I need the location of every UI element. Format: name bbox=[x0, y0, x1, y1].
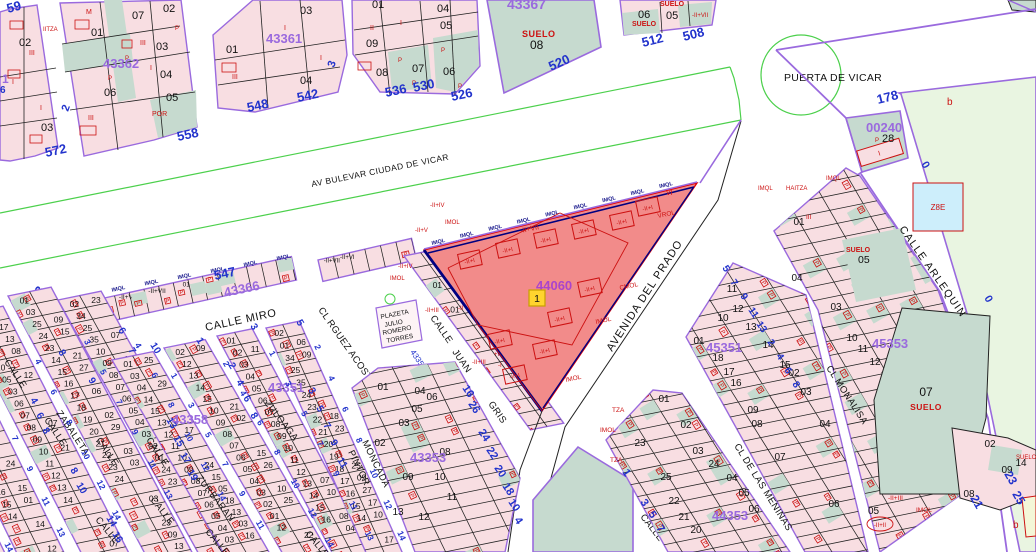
svg-text:03: 03 bbox=[239, 360, 249, 370]
svg-text:13: 13 bbox=[57, 483, 67, 493]
svg-text:14: 14 bbox=[196, 382, 206, 392]
svg-text:10: 10 bbox=[434, 472, 446, 483]
svg-text:05: 05 bbox=[252, 383, 262, 393]
svg-text:01: 01 bbox=[123, 359, 133, 369]
svg-text:SUELO: SUELO bbox=[632, 21, 657, 28]
svg-text:03: 03 bbox=[225, 535, 235, 545]
svg-text:13: 13 bbox=[174, 541, 184, 551]
svg-text:07: 07 bbox=[116, 382, 126, 392]
svg-text:04: 04 bbox=[791, 273, 803, 284]
svg-text:06: 06 bbox=[92, 386, 102, 396]
svg-text:15: 15 bbox=[211, 472, 221, 482]
svg-text:10: 10 bbox=[277, 483, 287, 493]
svg-text:34: 34 bbox=[285, 353, 295, 363]
svg-text:29: 29 bbox=[157, 378, 167, 388]
svg-text:02: 02 bbox=[70, 299, 80, 309]
svg-text:-II+IV: -II+IV bbox=[398, 264, 413, 270]
svg-text:-II: -II bbox=[458, 306, 464, 312]
svg-text:1: 1 bbox=[2, 72, 9, 86]
svg-text:09: 09 bbox=[168, 529, 178, 539]
svg-text:03: 03 bbox=[156, 41, 168, 53]
svg-text:23: 23 bbox=[168, 476, 178, 486]
svg-text:25: 25 bbox=[284, 495, 294, 505]
svg-text:03: 03 bbox=[123, 446, 133, 456]
svg-text:15: 15 bbox=[150, 406, 160, 416]
svg-text:10: 10 bbox=[96, 346, 106, 356]
svg-text:POR: POR bbox=[152, 111, 167, 118]
svg-text:13: 13 bbox=[189, 371, 199, 381]
svg-text:I: I bbox=[40, 105, 42, 112]
svg-text:05: 05 bbox=[243, 464, 253, 474]
svg-text:17: 17 bbox=[384, 534, 394, 544]
svg-text:IMQL: IMQL bbox=[826, 176, 841, 182]
svg-text:08: 08 bbox=[530, 38, 544, 52]
svg-text:26: 26 bbox=[263, 460, 273, 470]
svg-text:b: b bbox=[1013, 520, 1019, 531]
svg-text:10: 10 bbox=[284, 443, 294, 453]
svg-text:16: 16 bbox=[730, 378, 742, 389]
svg-text:13: 13 bbox=[5, 334, 15, 344]
svg-text:05: 05 bbox=[129, 405, 139, 415]
svg-text:09: 09 bbox=[402, 472, 414, 483]
svg-text:09: 09 bbox=[747, 405, 759, 416]
svg-text:09: 09 bbox=[302, 349, 312, 359]
svg-text:04: 04 bbox=[218, 523, 228, 533]
svg-text:04: 04 bbox=[250, 476, 260, 486]
svg-text:43367: 43367 bbox=[507, 0, 546, 12]
svg-text:22: 22 bbox=[313, 414, 323, 424]
svg-text:04: 04 bbox=[300, 75, 312, 87]
svg-text:04: 04 bbox=[246, 371, 256, 381]
svg-text:12: 12 bbox=[277, 523, 287, 533]
svg-text:Z8E: Z8E bbox=[931, 203, 946, 212]
svg-text:03: 03 bbox=[800, 387, 812, 398]
svg-text:43353: 43353 bbox=[410, 450, 446, 465]
svg-text:11: 11 bbox=[45, 459, 54, 469]
svg-text:IMOL: IMOL bbox=[916, 507, 932, 514]
svg-text:12: 12 bbox=[418, 512, 430, 523]
svg-text:02: 02 bbox=[263, 499, 273, 509]
svg-text:16: 16 bbox=[245, 530, 255, 540]
svg-text:M: M bbox=[86, 9, 92, 16]
svg-text:15: 15 bbox=[60, 327, 70, 337]
svg-text:10: 10 bbox=[846, 333, 858, 344]
svg-text:25: 25 bbox=[144, 355, 154, 365]
svg-text:6: 6 bbox=[0, 85, 6, 96]
svg-text:-II+VI: -II+VI bbox=[340, 255, 355, 261]
svg-text:15: 15 bbox=[257, 448, 267, 458]
svg-text:II: II bbox=[370, 25, 374, 32]
svg-text:43361: 43361 bbox=[266, 31, 302, 46]
svg-text:06: 06 bbox=[748, 504, 760, 515]
svg-text:P: P bbox=[175, 26, 179, 32]
svg-text:45353: 45353 bbox=[872, 336, 908, 351]
svg-text:27: 27 bbox=[79, 362, 89, 372]
svg-text:03: 03 bbox=[130, 371, 140, 381]
svg-text:IMOL: IMOL bbox=[390, 276, 405, 282]
svg-text:08: 08 bbox=[223, 429, 233, 439]
svg-text:01: 01 bbox=[693, 336, 705, 347]
svg-text:25: 25 bbox=[32, 319, 42, 329]
svg-text:15: 15 bbox=[18, 483, 28, 493]
svg-text:10: 10 bbox=[327, 487, 337, 497]
svg-text:25: 25 bbox=[291, 365, 301, 375]
svg-text:IMOL: IMOL bbox=[445, 220, 460, 226]
svg-text:SUELO: SUELO bbox=[910, 402, 942, 412]
svg-text:28: 28 bbox=[882, 133, 894, 145]
svg-text:III: III bbox=[88, 115, 94, 122]
svg-text:15: 15 bbox=[58, 367, 68, 377]
svg-text:1: 1 bbox=[534, 293, 540, 305]
svg-text:03: 03 bbox=[238, 519, 248, 529]
svg-text:06: 06 bbox=[443, 66, 455, 78]
svg-text:04: 04 bbox=[135, 417, 145, 427]
svg-text:07: 07 bbox=[320, 475, 330, 485]
svg-text:09: 09 bbox=[54, 315, 64, 325]
svg-text:01: 01 bbox=[658, 394, 670, 405]
svg-text:12: 12 bbox=[869, 357, 881, 368]
svg-text:-II+V: -II+V bbox=[415, 228, 428, 234]
svg-text:04: 04 bbox=[414, 386, 426, 397]
svg-text:29: 29 bbox=[111, 422, 121, 432]
svg-text:23: 23 bbox=[634, 438, 646, 449]
svg-text:10: 10 bbox=[373, 510, 383, 520]
svg-text:SUELO: SUELO bbox=[1016, 455, 1036, 461]
svg-text:01: 01 bbox=[20, 295, 30, 305]
svg-text:SUELO: SUELO bbox=[846, 247, 871, 254]
svg-text:02: 02 bbox=[274, 328, 284, 338]
svg-text:III: III bbox=[140, 40, 146, 47]
svg-text:-II+III: -II+III bbox=[888, 495, 903, 502]
svg-text:12: 12 bbox=[732, 304, 744, 315]
svg-text:-II+III: -II+III bbox=[472, 360, 486, 366]
svg-text:10: 10 bbox=[39, 447, 49, 457]
svg-text:17: 17 bbox=[340, 476, 350, 486]
svg-text:24: 24 bbox=[115, 474, 125, 484]
svg-text:18: 18 bbox=[329, 411, 339, 421]
svg-text:18: 18 bbox=[77, 403, 87, 413]
svg-text:05: 05 bbox=[868, 506, 880, 517]
svg-text:01: 01 bbox=[226, 44, 238, 56]
svg-text:02: 02 bbox=[19, 37, 31, 49]
svg-text:11: 11 bbox=[290, 455, 299, 465]
svg-text:07: 07 bbox=[229, 441, 239, 451]
svg-text:III: III bbox=[806, 214, 812, 221]
svg-text:IITZA: IITZA bbox=[43, 27, 58, 33]
svg-text:03: 03 bbox=[130, 458, 140, 468]
svg-text:04: 04 bbox=[819, 419, 831, 430]
svg-text:06: 06 bbox=[104, 87, 116, 99]
svg-text:05: 05 bbox=[440, 20, 452, 32]
svg-text:21: 21 bbox=[230, 401, 240, 411]
svg-text:P: P bbox=[125, 56, 129, 62]
svg-text:03: 03 bbox=[8, 387, 18, 397]
svg-text:01: 01 bbox=[91, 27, 103, 39]
svg-text:I: I bbox=[320, 55, 322, 62]
svg-text:P: P bbox=[875, 138, 879, 144]
svg-text:08: 08 bbox=[376, 67, 388, 79]
svg-text:16: 16 bbox=[0, 487, 6, 497]
svg-text:20: 20 bbox=[690, 525, 702, 536]
svg-text:14: 14 bbox=[63, 495, 73, 505]
svg-text:03: 03 bbox=[26, 307, 36, 317]
svg-text:03: 03 bbox=[830, 302, 842, 313]
svg-text:11: 11 bbox=[858, 344, 869, 355]
svg-text:03: 03 bbox=[41, 122, 53, 134]
svg-text:21: 21 bbox=[678, 512, 690, 523]
svg-text:TZA: TZA bbox=[612, 407, 625, 414]
svg-text:14: 14 bbox=[8, 511, 18, 521]
svg-text:15: 15 bbox=[202, 394, 212, 404]
svg-text:16: 16 bbox=[322, 515, 332, 525]
svg-text:09: 09 bbox=[216, 417, 226, 427]
svg-text:TZA: TZA bbox=[610, 457, 623, 464]
svg-text:10: 10 bbox=[717, 313, 729, 324]
svg-text:43362: 43362 bbox=[103, 56, 139, 71]
svg-text:10: 10 bbox=[209, 406, 219, 416]
svg-text:09: 09 bbox=[366, 38, 378, 50]
svg-text:05: 05 bbox=[666, 10, 678, 22]
svg-text:-II+II: -II+II bbox=[874, 523, 887, 529]
svg-text:05: 05 bbox=[166, 92, 178, 104]
svg-text:VI: VI bbox=[666, 190, 673, 197]
svg-text:24: 24 bbox=[708, 459, 720, 470]
svg-text:01: 01 bbox=[372, 0, 384, 11]
svg-text:P: P bbox=[441, 48, 445, 54]
svg-text:02: 02 bbox=[374, 438, 386, 449]
svg-text:07: 07 bbox=[20, 411, 30, 421]
svg-text:III: III bbox=[29, 50, 35, 57]
svg-text:09: 09 bbox=[33, 435, 43, 445]
svg-text:SUELO: SUELO bbox=[660, 1, 685, 8]
svg-text:P: P bbox=[108, 76, 112, 82]
svg-text:I: I bbox=[400, 20, 402, 27]
svg-text:14: 14 bbox=[144, 394, 154, 404]
svg-text:07: 07 bbox=[412, 63, 424, 75]
svg-text:11: 11 bbox=[447, 492, 458, 503]
svg-text:03: 03 bbox=[256, 488, 266, 498]
svg-text:22: 22 bbox=[668, 496, 680, 507]
svg-text:PUERTA DE VICAR: PUERTA DE VICAR bbox=[784, 72, 882, 84]
svg-text:06: 06 bbox=[14, 399, 24, 409]
svg-text:14: 14 bbox=[35, 519, 45, 529]
svg-text:05: 05 bbox=[738, 488, 750, 499]
svg-text:43358: 43358 bbox=[172, 412, 208, 427]
svg-text:07: 07 bbox=[774, 452, 786, 463]
svg-text:16: 16 bbox=[346, 488, 356, 498]
svg-text:45351: 45351 bbox=[706, 340, 742, 355]
svg-text:-II+III: -II+III bbox=[425, 308, 439, 314]
svg-text:I: I bbox=[284, 25, 286, 32]
svg-text:01: 01 bbox=[433, 280, 443, 290]
svg-text:01: 01 bbox=[270, 511, 280, 521]
svg-text:P: P bbox=[398, 58, 402, 64]
svg-text:13: 13 bbox=[303, 479, 313, 489]
svg-text:25: 25 bbox=[83, 323, 93, 333]
svg-text:19: 19 bbox=[83, 415, 93, 425]
svg-text:IMQL: IMQL bbox=[758, 186, 773, 192]
svg-text:I: I bbox=[150, 65, 152, 72]
svg-text:06: 06 bbox=[236, 452, 246, 462]
svg-text:-II+VII: -II+VII bbox=[148, 288, 166, 295]
svg-text:04: 04 bbox=[437, 3, 449, 15]
svg-text:02: 02 bbox=[175, 347, 185, 357]
svg-text:-II+VII: -II+VII bbox=[324, 259, 341, 265]
svg-text:13: 13 bbox=[392, 507, 404, 518]
svg-text:HAITZA: HAITZA bbox=[786, 186, 807, 192]
svg-text:01: 01 bbox=[24, 495, 34, 505]
svg-text:08: 08 bbox=[109, 370, 119, 380]
svg-text:23: 23 bbox=[45, 343, 55, 353]
svg-text:17: 17 bbox=[70, 391, 80, 401]
svg-text:12: 12 bbox=[296, 467, 306, 477]
svg-text:15: 15 bbox=[2, 499, 12, 509]
svg-text:08: 08 bbox=[11, 346, 21, 356]
svg-text:16: 16 bbox=[64, 379, 74, 389]
svg-text:-II+IV: -II+IV bbox=[430, 203, 445, 209]
svg-text:24: 24 bbox=[39, 331, 49, 341]
svg-text:02: 02 bbox=[233, 348, 243, 358]
svg-text:12: 12 bbox=[47, 543, 57, 552]
svg-text:02: 02 bbox=[680, 420, 692, 431]
svg-text:05: 05 bbox=[858, 254, 870, 266]
svg-text:14: 14 bbox=[357, 513, 367, 523]
svg-text:12: 12 bbox=[51, 471, 61, 481]
svg-text:08: 08 bbox=[751, 419, 763, 430]
svg-text:06: 06 bbox=[426, 392, 438, 403]
svg-text:01: 01 bbox=[793, 217, 805, 228]
svg-text:02: 02 bbox=[104, 410, 114, 420]
svg-text:05: 05 bbox=[411, 404, 423, 415]
svg-text:02: 02 bbox=[163, 3, 175, 15]
svg-text:03: 03 bbox=[692, 446, 704, 457]
svg-text:04: 04 bbox=[160, 69, 172, 81]
svg-text:06: 06 bbox=[638, 9, 650, 21]
svg-text:-II+VII: -II+VII bbox=[692, 13, 709, 19]
svg-text:III: III bbox=[232, 74, 238, 81]
svg-text:17: 17 bbox=[368, 497, 378, 507]
svg-text:03: 03 bbox=[300, 5, 312, 17]
svg-text:23: 23 bbox=[335, 423, 345, 433]
svg-text:17: 17 bbox=[723, 367, 735, 378]
svg-text:02: 02 bbox=[236, 413, 246, 423]
svg-text:24: 24 bbox=[6, 459, 16, 469]
svg-text:12: 12 bbox=[182, 359, 192, 369]
svg-text:17: 17 bbox=[0, 322, 9, 332]
svg-text:25: 25 bbox=[660, 472, 672, 483]
svg-text:02: 02 bbox=[984, 439, 996, 450]
svg-text:06: 06 bbox=[296, 337, 306, 347]
svg-text:14: 14 bbox=[309, 491, 319, 501]
svg-text:07: 07 bbox=[132, 10, 144, 22]
svg-text:11: 11 bbox=[251, 344, 260, 354]
svg-text:01: 01 bbox=[280, 340, 290, 350]
svg-text:b: b bbox=[947, 97, 953, 108]
svg-text:03: 03 bbox=[398, 418, 410, 429]
svg-text:20: 20 bbox=[89, 426, 99, 436]
svg-text:34: 34 bbox=[76, 311, 86, 321]
svg-text:01: 01 bbox=[377, 382, 389, 393]
svg-text:01: 01 bbox=[226, 336, 236, 346]
svg-text:08: 08 bbox=[27, 423, 37, 433]
svg-text:IMOL: IMOL bbox=[600, 427, 616, 434]
svg-text:01: 01 bbox=[183, 281, 191, 288]
svg-text:07: 07 bbox=[919, 385, 933, 399]
svg-text:23: 23 bbox=[91, 295, 101, 305]
svg-text:21: 21 bbox=[73, 351, 83, 361]
svg-text:44353: 44353 bbox=[712, 508, 748, 523]
svg-text:I: I bbox=[12, 79, 14, 86]
svg-text:-I: -I bbox=[498, 363, 502, 369]
svg-text:06: 06 bbox=[828, 499, 840, 510]
svg-text:04: 04 bbox=[726, 473, 738, 484]
svg-text:04: 04 bbox=[137, 383, 147, 393]
